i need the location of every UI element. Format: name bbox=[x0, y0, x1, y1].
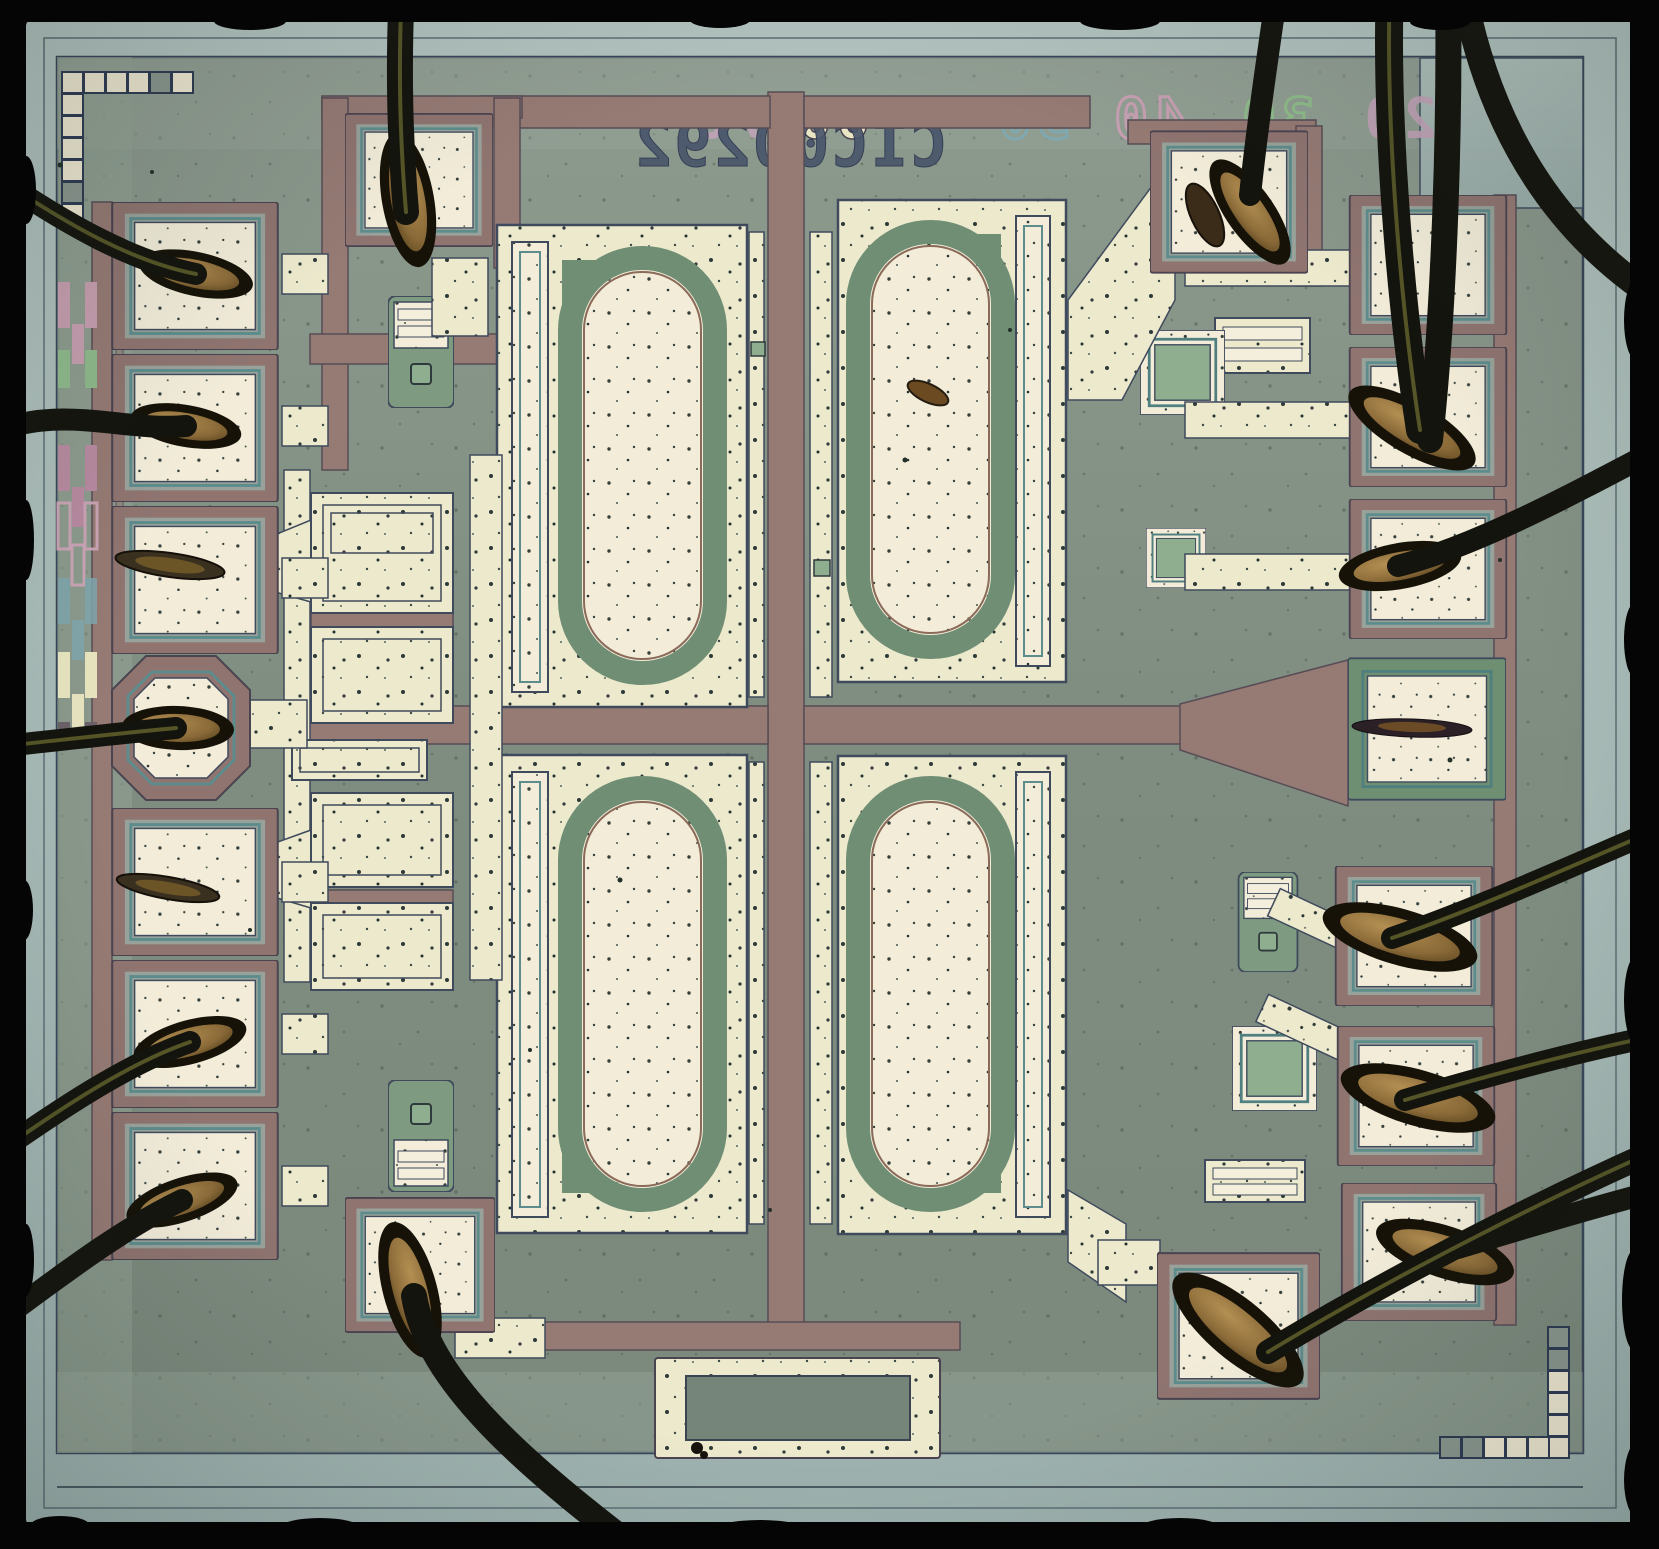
die-photograph: 70 60 50 40 30 20 CIC00292 BB bbox=[0, 0, 1659, 1549]
vignette bbox=[26, 20, 1634, 1525]
